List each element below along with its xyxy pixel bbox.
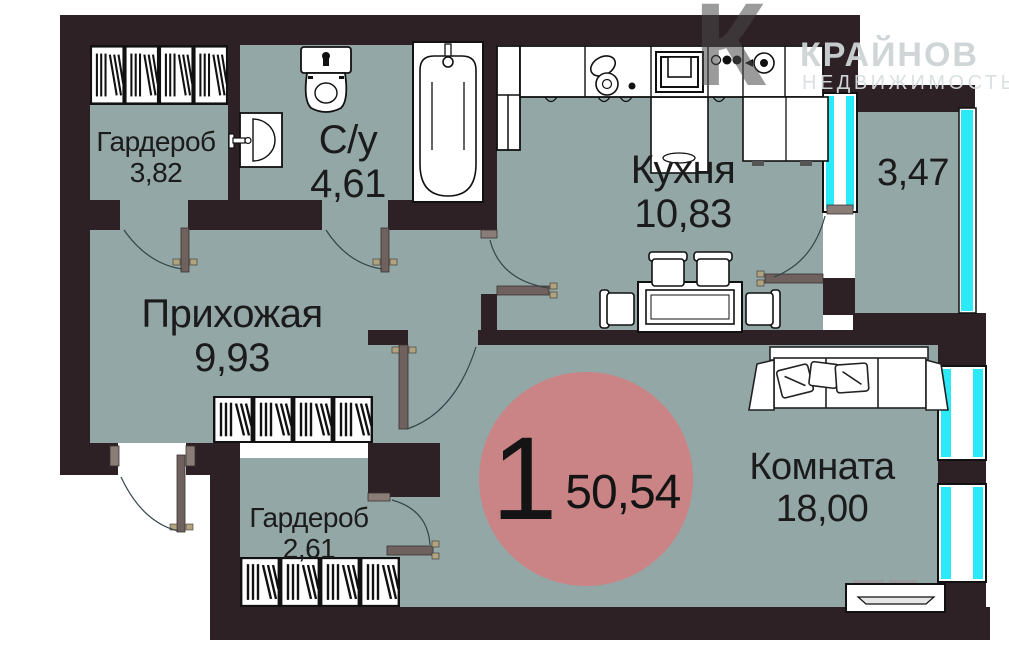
room-area: 10,83 — [631, 192, 736, 236]
room-area: 2,61 — [249, 534, 368, 565]
label-hallway: Прихожая 9,93 — [141, 292, 322, 380]
room-name: Гардероб — [96, 127, 215, 158]
room-area: 3,82 — [96, 158, 215, 189]
room-name: Комната — [749, 447, 894, 489]
balcony-glazing — [959, 108, 976, 313]
rooms-count: 1 — [492, 420, 558, 538]
unit-area-badge: 1 50,54 — [479, 372, 693, 586]
label-bathroom: С/у 4,61 — [310, 118, 386, 206]
label-living-room: Комната 18,00 — [749, 447, 894, 531]
wardrobe-shelving-top — [91, 46, 227, 103]
label-wardrobe-top: Гардероб 3,82 — [96, 127, 215, 189]
sofa — [749, 347, 948, 410]
kitchen-oven — [656, 52, 703, 92]
dining-table — [638, 282, 742, 332]
room-name: С/у — [310, 118, 386, 162]
floor-plan: Гардероб 3,82 С/у 4,61 Кухня 10,83 3,47 … — [0, 0, 1009, 664]
room-name: Гардероб — [249, 503, 368, 534]
room-area: 9,93 — [141, 336, 322, 380]
label-kitchen: Кухня 10,83 — [631, 148, 736, 236]
room-area: 3,47 — [877, 153, 949, 195]
kitchen-fridge — [497, 46, 520, 150]
label-balcony: 3,47 — [877, 153, 949, 195]
total-area: 50,54 — [565, 465, 680, 520]
door-entrance — [121, 455, 193, 532]
label-wardrobe-bottom: Гардероб 2,61 — [249, 503, 368, 565]
room-area: 4,61 — [310, 162, 386, 206]
room-window-upper — [938, 366, 986, 460]
wardrobe-shelving-bottom — [241, 558, 399, 606]
room-area: 18,00 — [749, 489, 894, 531]
room-name: Кухня — [631, 148, 736, 192]
bathtub — [413, 42, 483, 202]
room-window-lower — [938, 484, 986, 582]
toilet — [301, 47, 351, 112]
room-name: Прихожая — [141, 292, 322, 336]
tv-stand — [846, 580, 945, 612]
hallway-closet-shelving — [214, 397, 372, 442]
